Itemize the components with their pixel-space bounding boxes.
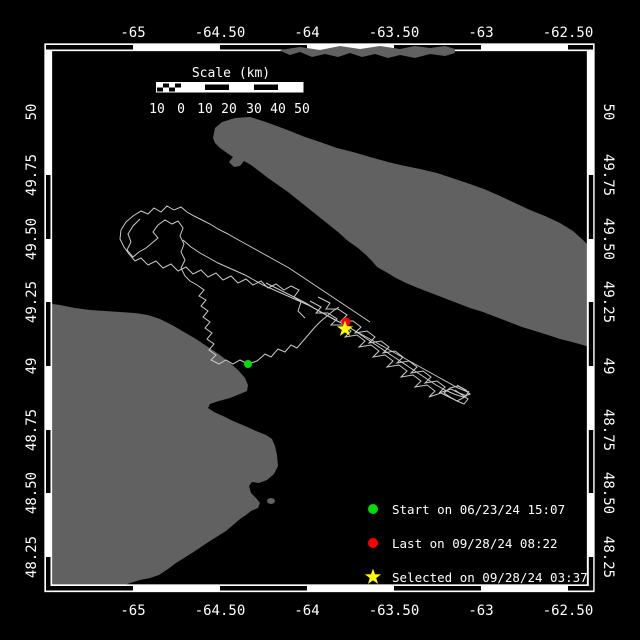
small-islet <box>267 498 275 504</box>
legend-item-selected: Selected on 09/28/24 03:37 <box>365 569 588 586</box>
lat-tick-label: 48.75 <box>24 409 40 451</box>
legend-item-start: Start on 06/23/24 15:07 <box>368 502 565 517</box>
lon-tick-label: -65 <box>120 603 145 619</box>
lon-tick-label: -64.50 <box>195 603 246 619</box>
scale-tick-label: 0 <box>177 102 185 117</box>
lat-tick-label: 48.25 <box>600 536 616 578</box>
frame-segment <box>589 557 594 590</box>
start-marker-icon <box>368 504 378 514</box>
scale-bar-title: Scale (km) <box>192 66 270 81</box>
lat-tick-label: 49.75 <box>600 154 616 196</box>
scale-tick-label: 10 <box>149 102 165 117</box>
lat-tick-label: 49.25 <box>24 281 40 323</box>
frame-segment <box>46 175 51 239</box>
frame-segment <box>394 586 481 591</box>
lat-tick-label: 48.50 <box>600 472 616 514</box>
frame-segment <box>220 586 307 591</box>
lat-tick-label: 49.25 <box>600 281 616 323</box>
legend-item-last: Last on 09/28/24 08:22 <box>368 536 558 551</box>
scale-bar-check <box>163 84 169 88</box>
frame-segment <box>589 175 594 239</box>
legend-item-label: Last on 09/28/24 08:22 <box>392 536 558 551</box>
lat-tick-label: 48.50 <box>24 472 40 514</box>
lat-tick-label: 49.75 <box>24 154 40 196</box>
legend-item-label: Selected on 09/28/24 03:37 <box>392 570 588 585</box>
lon-tick-label: -65 <box>120 25 145 41</box>
lon-tick-label: -62.50 <box>543 603 594 619</box>
lon-tick-label: -64 <box>294 25 319 41</box>
start-position-marker[interactable] <box>244 360 252 368</box>
scale-tick-label: 50 <box>294 102 310 117</box>
scale-bar-check <box>169 88 175 92</box>
scale-tick-label: 20 <box>221 102 237 117</box>
lat-tick-label: 49.50 <box>600 218 616 260</box>
lat-tick-label: 48.25 <box>24 536 40 578</box>
map-canvas[interactable]: -65 -64.50 -64 -63.50 -63 -62.50 -65 -64… <box>0 0 640 640</box>
lon-tick-label: -63 <box>468 25 493 41</box>
lat-tick-label: 48.75 <box>600 409 616 451</box>
scale-tick-label: 30 <box>246 102 262 117</box>
lat-tick-label: 50 <box>600 104 616 121</box>
scale-tick-label: 40 <box>270 102 286 117</box>
frame-segment <box>46 586 133 591</box>
scale-bar-segment <box>205 85 229 91</box>
scale-tick-label: 10 <box>197 102 213 117</box>
frame-segment <box>589 302 594 366</box>
lat-tick-label: 49 <box>24 358 40 375</box>
scale-bar-check <box>157 88 163 92</box>
lat-tick-label: 49 <box>600 358 616 375</box>
scale-bar-segment <box>254 85 278 91</box>
last-marker-icon <box>368 538 378 548</box>
scale-bar-check <box>175 84 181 88</box>
lat-tick-label: 49.50 <box>24 218 40 260</box>
lon-tick-label: -63 <box>468 603 493 619</box>
lon-tick-label: -63.50 <box>369 25 420 41</box>
lon-tick-label: -62.50 <box>543 25 594 41</box>
lon-tick-label: -63.50 <box>369 603 420 619</box>
frame-segment <box>46 557 51 590</box>
frame-segment <box>46 430 51 493</box>
frame-segment <box>46 302 51 366</box>
frame-segment <box>568 45 593 50</box>
lat-tick-label: 50 <box>24 104 40 121</box>
legend: Start on 06/23/24 15:07 Last on 09/28/24… <box>365 502 588 585</box>
legend-item-label: Start on 06/23/24 15:07 <box>392 502 565 517</box>
frame-segment <box>46 45 133 50</box>
frame-segment <box>589 430 594 493</box>
lon-tick-label: -64 <box>294 603 319 619</box>
lon-tick-label: -64.50 <box>195 25 246 41</box>
